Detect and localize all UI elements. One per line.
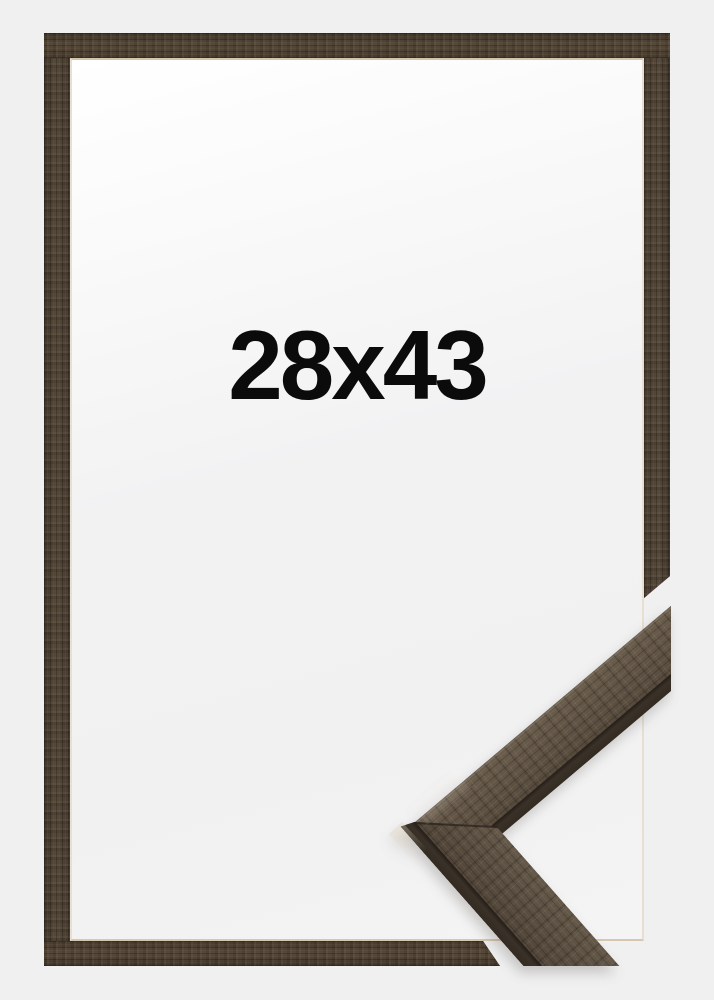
picture-frame: 28x43: [0, 0, 714, 1000]
frame-bar-right: [644, 58, 670, 598]
frame-bar-left: [44, 58, 70, 941]
product-photo: 28x43: [0, 0, 714, 1000]
size-label: 28x43: [72, 315, 642, 415]
frame-interior: 28x43: [70, 58, 644, 941]
frame-bar-top: [44, 33, 670, 58]
frame-bar-bottom: [44, 941, 670, 966]
